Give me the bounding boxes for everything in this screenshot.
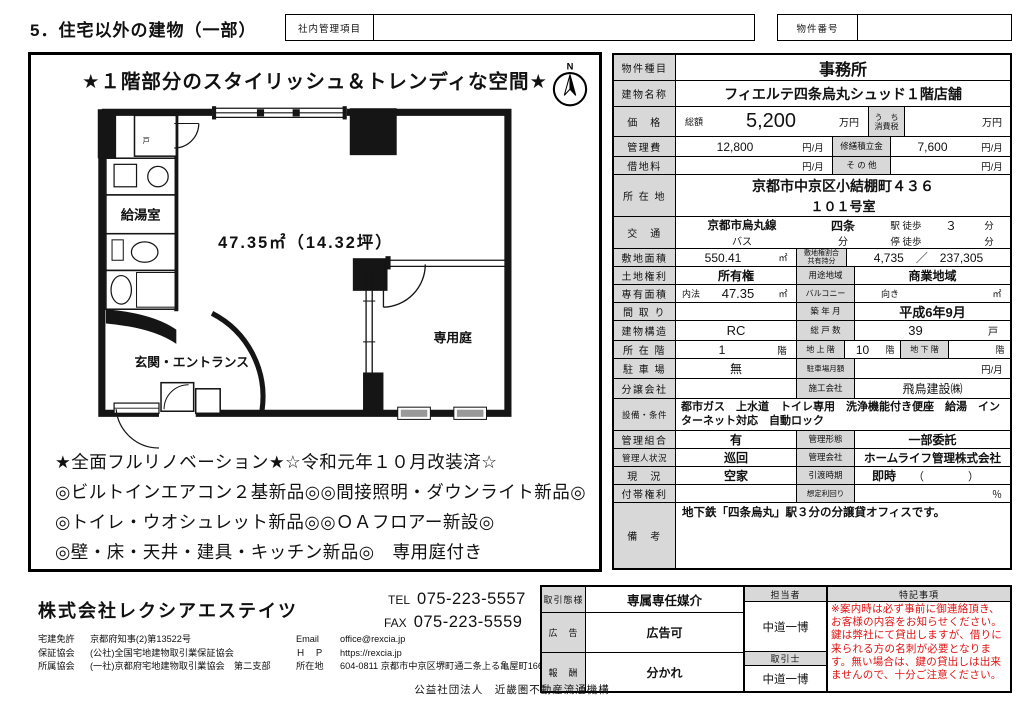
site-area-value: 550.41	[676, 251, 770, 265]
office-address-value: 604-0811 京都市中京区堺町通二条上る亀屋町166番地1	[340, 660, 567, 674]
tel-number: 075-223-5557	[417, 590, 526, 609]
license-row: 宅建免許 京都府知事(2)第13522号	[38, 633, 271, 647]
access-bus-label: バス	[676, 233, 808, 248]
agent-header: 取引士	[745, 651, 826, 666]
builder-value: 飛鳥建設㈱	[902, 380, 962, 397]
total-units-label: 総 戸 数	[796, 321, 854, 340]
expected-yield-label: 想定利回り	[796, 485, 854, 502]
address-label: 所 在 地	[614, 175, 676, 216]
structure-value: RC	[727, 323, 746, 338]
association-label: 所属協会	[38, 660, 90, 674]
balcony-label: バルコニー	[796, 285, 854, 302]
special-notes-text: ※案内時は必ず事前に御連絡頂き、お客様の内容をお知らせください。鍵は弊社にて貸出…	[828, 602, 1010, 691]
deal-type-value: 専属専任媒介	[586, 587, 743, 612]
structure-label: 建物構造	[614, 321, 676, 340]
rep-name: 中道一博	[745, 602, 826, 651]
guarantee-value: (公社)全国宅地建物取引業保証協会	[90, 647, 234, 661]
hoa-label: 管理組合	[614, 431, 676, 448]
zoning-label: 用途地域	[796, 267, 854, 284]
hp-value: https://rexcia.jp	[340, 647, 402, 661]
remarks-label: 備 考	[614, 503, 676, 568]
contact-block: Email office@rexcia.jp Ｈ Ｐ https://rexci…	[296, 633, 567, 674]
row-access: 交 通 京都市烏丸線 四条 駅 徒歩 ３ 分 バス 分 停 徒歩 分	[614, 216, 1010, 248]
hp-row: Ｈ Ｐ https://rexcia.jp	[296, 647, 567, 661]
row-developer: 分譲会社 施工会社 飛鳥建設㈱	[614, 378, 1010, 398]
fax-row: FAX 075-223-5559	[384, 613, 522, 632]
equipment-value: 都市ガス 上水道 トイレ専用 洗浄機能付き便座 給湯 インターネット対応 自動ロ…	[676, 399, 1010, 430]
other-fee-label: そ の 他	[832, 157, 890, 174]
floorplan-headline: ★１階部分のスタイリッシュ＆トレンディな空間★	[31, 65, 599, 94]
land-share-value: 4,735 ／ 237,305	[874, 249, 983, 266]
floors-above-unit: 階	[880, 343, 900, 356]
special-notes-header: 特記事項	[828, 587, 1010, 602]
property-number-label: 物件番号	[778, 15, 858, 40]
mgmt-company-value: ホームライフ管理株式会社	[864, 450, 1001, 466]
current-status-label: 現 況	[614, 467, 676, 484]
deal-table: 取引態様 専属専任媒介 広 告 広告可 報 酬 分かれ	[540, 585, 745, 693]
property-number-value	[858, 15, 1011, 40]
internal-management-label: 社内管理項目	[286, 15, 374, 40]
access-stop-unit: 分	[968, 234, 1010, 248]
row-management-fee: 管理費 12,800 円/月 修繕積立金 7,600 円/月	[614, 136, 1010, 156]
repair-fund-unit: 円/月	[974, 140, 1010, 154]
developer-label: 分譲会社	[614, 379, 676, 398]
row-land-rent: 借地料 円/月 そ の 他 円/月	[614, 156, 1010, 174]
plan-area-label: 47.35㎡（14.32坪）	[218, 233, 393, 252]
floorplan-svg: 戸 給湯室 47.35㎡（14.32坪） 玄関・エントランス 専用庭	[61, 97, 561, 449]
feature-list: ★全面フルリノベーション★☆令和元年１０月改装済☆ ◎ビルトインエアコン２基新品…	[55, 447, 595, 567]
fax-number: 075-223-5559	[414, 613, 523, 632]
mgmt-company-label: 管理会社	[796, 449, 854, 466]
ad-row: 広 告 広告可	[542, 612, 743, 652]
guarantee-label: 保証協会	[38, 647, 90, 661]
row-site-area: 敷地面積 550.41 ㎡ 敷地権割合 共有持分 4,735 ／ 237,305	[614, 248, 1010, 266]
property-spec-table: 物件種目 事務所 建物名称 フィエルテ四条烏丸シュッド１階店舗 価 格 総額 5…	[612, 53, 1012, 570]
site-area-label: 敷地面積	[614, 249, 676, 266]
row-layout: 間 取 り 築 年 月 平成6年9月	[614, 302, 1010, 320]
feature-line: ◎壁・床・天井・建具・キッチン新品◎ 専用庭付き	[55, 537, 595, 567]
floors-below-label: 地 下 階	[900, 341, 948, 358]
email-row: Email office@rexcia.jp	[296, 633, 567, 647]
balcony-unit: ㎡	[984, 287, 1010, 300]
expected-yield-unit: ％	[984, 486, 1010, 501]
built-date-value: 平成6年9月	[899, 302, 965, 321]
mgmt-form-label: 管理形態	[796, 431, 854, 448]
row-hoa: 管理組合 有 管理形態 一部委託	[614, 430, 1010, 448]
land-rent-unit: 円/月	[794, 159, 832, 173]
built-date-label: 築 年 月	[796, 303, 854, 320]
access-bus-unit: 分	[808, 233, 878, 248]
special-notes-box: 特記事項 ※案内時は必ず事前に御連絡頂き、お客様の内容をお知らせください。鍵は弊…	[826, 585, 1012, 693]
parking-monthly-label: 駐車場月額	[796, 359, 854, 378]
land-right-label: 土地権利	[614, 267, 676, 284]
fax-label: FAX	[384, 616, 407, 630]
access-station: 四条	[808, 217, 878, 234]
feature-line: ★全面フルリノベーション★☆令和元年１０月改装済☆	[55, 447, 595, 477]
rep-header: 担当者	[745, 587, 826, 602]
price-unit: 万円	[830, 114, 868, 129]
floors-below-unit: 階	[990, 343, 1010, 356]
license-value: 京都府知事(2)第13522号	[90, 633, 191, 647]
access-walk-unit: 分	[968, 218, 1010, 232]
equipment-label: 設備・条件	[614, 399, 676, 430]
license-block: 宅建免許 京都府知事(2)第13522号 保証協会 (公社)全国宅地建物取引業保…	[38, 633, 271, 674]
feature-line: ◎トイレ・ウオシュレット新品◎◎ＯＡフロアー新設◎	[55, 507, 595, 537]
property-flyer-page: 5．住宅以外の建物（一部） 社内管理項目 物件番号 ★１階部分のスタイリッシュ＆…	[0, 0, 1024, 724]
row-parking: 駐 車 場 無 駐車場月額 円/月	[614, 358, 1010, 378]
row-price: 価 格 総額 5,200 万円 う ち 消費税 万円	[614, 106, 1010, 136]
price-prefix: 総額	[676, 115, 712, 128]
parking-value: 無	[730, 360, 742, 377]
row-status: 現 況 空家 引渡時期 即時 （ ）	[614, 466, 1010, 484]
internal-management-value	[374, 15, 754, 40]
repair-fund-value: 7,600	[891, 140, 974, 154]
remarks-value: 地下鉄「四条烏丸」駅３分の分譲貸オフィスです。	[676, 503, 951, 523]
facing-label: 向き	[855, 287, 925, 300]
zoning-value: 商業地域	[908, 267, 956, 284]
property-number-box: 物件番号	[777, 14, 1012, 41]
tel-label: TEL	[388, 593, 410, 607]
floors-above-value: 10	[845, 343, 880, 357]
association-row: 所属協会 (一社)京都府宅地建物取引業協会 第二支部	[38, 660, 271, 674]
land-right-value: 所有権	[718, 267, 754, 284]
row-floor-number: 所 在 階 1 階 地 上 階 10 階 地 下 階 階	[614, 340, 1010, 358]
row-land-right: 土地権利 所有権 用途地域 商業地域	[614, 266, 1010, 284]
access-stop-label: 停 徒歩	[878, 234, 934, 248]
site-area-unit: ㎡	[770, 251, 796, 264]
floorplan-panel: ★１階部分のスタイリッシュ＆トレンディな空間★ N	[28, 52, 602, 572]
mgmt-fee-label: 管理費	[614, 137, 676, 156]
compass-n-label: N	[567, 61, 574, 71]
row-extra-rights: 付帯権利 想定利回り ％	[614, 484, 1010, 502]
parking-label: 駐 車 場	[614, 359, 676, 378]
floor-area-label: 専有面積	[614, 285, 676, 302]
mgmt-fee-unit: 円/月	[794, 140, 832, 154]
row-address: 所 在 地 京都市中京区小結棚町４３６ １０１号室	[614, 174, 1010, 216]
office-address-label: 所在地	[296, 660, 340, 674]
price-value: 5,200	[712, 110, 830, 133]
feature-line: ◎ビルトインエアコン２基新品◎◎間接照明・ダウンライト新品◎	[55, 477, 595, 507]
row-equipment: 設備・条件 都市ガス 上水道 トイレ専用 洗浄機能付き便座 給湯 インターネット…	[614, 398, 1010, 430]
current-status-value: 空家	[724, 467, 748, 484]
hp-label: Ｈ Ｐ	[296, 647, 340, 661]
mgmt-fee-value: 12,800	[676, 140, 794, 154]
row-remarks: 備 考 地下鉄「四条烏丸」駅３分の分譲貸オフィスです。	[614, 502, 1010, 568]
office-address-row: 所在地 604-0811 京都市中京区堺町通二条上る亀屋町166番地1	[296, 660, 567, 674]
floors-above-label: 地 上 階	[796, 341, 844, 358]
page-title: 5．住宅以外の建物（一部）	[30, 16, 256, 41]
access-label: 交 通	[614, 217, 676, 248]
plan-kyuto-label: 給湯室	[121, 206, 161, 222]
row-building-name: 建物名称 フィエルテ四条烏丸シュッド１階店舗	[614, 80, 1010, 106]
handover-value: 即時	[855, 467, 913, 484]
internal-management-box: 社内管理項目	[285, 14, 755, 41]
other-fee-unit: 円/月	[974, 159, 1010, 173]
layout-label: 間 取 り	[614, 303, 676, 320]
floor-area-unit: ㎡	[770, 287, 796, 300]
tax-unit: 万円	[974, 114, 1010, 129]
builder-label: 施工会社	[796, 379, 854, 398]
plan-entrance-label: 玄関・エントランス	[134, 354, 248, 369]
association-value: (一社)京都府宅地建物取引業協会 第二支部	[90, 660, 271, 674]
total-units-value: 39	[855, 323, 976, 338]
ad-value: 広告可	[586, 613, 743, 652]
handover-paren: （ ）	[913, 468, 1010, 484]
row-manager: 管理人状況 巡回 管理会社 ホームライフ管理株式会社	[614, 448, 1010, 466]
floor-number-value: 1	[676, 343, 768, 357]
building-name-value: フィエルテ四条烏丸シュッド１階店舗	[724, 84, 962, 104]
repair-fund-label: 修繕積立金	[832, 137, 890, 156]
guarantee-row: 保証協会 (公社)全国宅地建物取引業保証協会	[38, 647, 271, 661]
row-property-type: 物件種目 事務所	[614, 55, 1010, 80]
building-name-label: 建物名称	[614, 81, 676, 106]
property-type-label: 物件種目	[614, 55, 676, 80]
floor-number-label: 所 在 階	[614, 341, 676, 358]
address-line1: 京都市中京区小結棚町４３６	[752, 176, 934, 196]
parking-monthly-unit: 円/月	[974, 362, 1010, 376]
access-walk-label: 駅 徒歩	[878, 218, 934, 232]
deal-type-label: 取引態様	[542, 587, 586, 612]
address-line2: １０１号室	[810, 196, 875, 215]
handover-label: 引渡時期	[796, 467, 854, 484]
mgmt-form-value: 一部委託	[908, 431, 956, 448]
access-walk-minutes: ３	[934, 217, 968, 234]
deal-type-row: 取引態様 専属専任媒介	[542, 587, 743, 612]
row-structure: 建物構造 RC 総 戸 数 39 戸	[614, 320, 1010, 340]
email-value: office@rexcia.jp	[340, 633, 405, 647]
tel-row: TEL 075-223-5557	[388, 590, 526, 609]
plan-garden-label: 専用庭	[434, 330, 472, 345]
email-label: Email	[296, 633, 340, 647]
license-label: 宅建免許	[38, 633, 90, 647]
organization-footer: 公益社団法人 近畿圏不動産流通機構	[0, 682, 1024, 697]
floor-area-value: 47.35	[706, 286, 770, 301]
hoa-value: 有	[730, 431, 742, 448]
total-units-unit: 戸	[976, 323, 1010, 338]
extra-rights-label: 付帯権利	[614, 485, 676, 502]
plan-door-label: 戸	[143, 137, 150, 145]
land-rent-label: 借地料	[614, 157, 676, 174]
price-label: 価 格	[614, 107, 676, 136]
manager-status-value: 巡回	[724, 449, 748, 466]
row-floor-area: 専有面積 内法 47.35 ㎡ バルコニー 向き ㎡	[614, 284, 1010, 302]
floor-area-method: 内法	[676, 287, 706, 300]
access-train-line: 京都市烏丸線	[676, 217, 808, 233]
floor-number-unit: 階	[768, 343, 796, 357]
land-share-label: 敷地権割合 共有持分	[796, 249, 846, 266]
ad-label: 広 告	[542, 613, 586, 652]
property-type-value: 事務所	[819, 56, 867, 80]
staff-column: 担当者 中道一博 取引士 中道一博	[743, 585, 828, 693]
tax-label: う ち 消費税	[868, 107, 904, 136]
manager-status-label: 管理人状況	[614, 449, 676, 466]
company-name: 株式会社レクシアエステイツ	[38, 597, 298, 623]
